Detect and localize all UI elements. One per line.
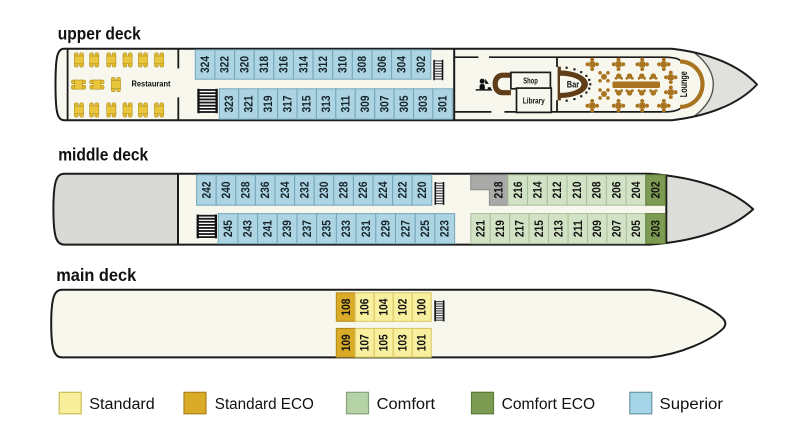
svg-text:235: 235 bbox=[321, 220, 334, 237]
svg-text:230: 230 bbox=[318, 182, 331, 199]
svg-text:310: 310 bbox=[337, 56, 350, 73]
svg-text:303: 303 bbox=[417, 95, 430, 112]
svg-text:219: 219 bbox=[494, 220, 507, 237]
svg-text:238: 238 bbox=[240, 181, 253, 198]
svg-text:205: 205 bbox=[630, 220, 643, 237]
svg-text:313: 313 bbox=[320, 95, 333, 112]
svg-text:Shop: Shop bbox=[523, 77, 538, 86]
svg-text:324: 324 bbox=[199, 56, 212, 73]
svg-text:307: 307 bbox=[378, 96, 391, 113]
svg-text:109: 109 bbox=[340, 334, 353, 351]
svg-text:Restaurant: Restaurant bbox=[132, 79, 171, 88]
svg-text:226: 226 bbox=[357, 181, 370, 198]
svg-text:208: 208 bbox=[591, 181, 604, 198]
svg-text:239: 239 bbox=[281, 220, 294, 237]
svg-text:302: 302 bbox=[415, 56, 428, 73]
svg-text:214: 214 bbox=[532, 181, 545, 198]
svg-text:221: 221 bbox=[475, 220, 488, 237]
svg-text:Superior: Superior bbox=[660, 396, 724, 413]
svg-text:318: 318 bbox=[258, 56, 271, 73]
svg-text:216: 216 bbox=[512, 181, 525, 198]
svg-text:321: 321 bbox=[242, 95, 255, 112]
svg-text:Lounge: Lounge bbox=[679, 71, 690, 97]
svg-text:209: 209 bbox=[591, 220, 604, 237]
svg-text:224: 224 bbox=[377, 181, 390, 198]
svg-text:202: 202 bbox=[650, 182, 663, 199]
svg-text:319: 319 bbox=[262, 95, 275, 112]
svg-text:Comfort: Comfort bbox=[377, 396, 436, 413]
svg-text:210: 210 bbox=[571, 182, 584, 199]
svg-text:232: 232 bbox=[298, 182, 311, 199]
svg-text:211: 211 bbox=[572, 220, 585, 237]
svg-text:312: 312 bbox=[317, 56, 330, 73]
svg-text:105: 105 bbox=[378, 334, 391, 351]
svg-text:103: 103 bbox=[397, 334, 410, 351]
svg-text:102: 102 bbox=[397, 299, 410, 316]
svg-text:305: 305 bbox=[398, 95, 411, 112]
svg-text:245: 245 bbox=[222, 220, 235, 237]
svg-text:212: 212 bbox=[551, 182, 564, 199]
svg-text:228: 228 bbox=[338, 181, 351, 198]
svg-text:323: 323 bbox=[223, 95, 236, 112]
svg-text:main deck: main deck bbox=[56, 265, 136, 285]
svg-text:240: 240 bbox=[220, 182, 233, 199]
svg-text:308: 308 bbox=[356, 56, 369, 73]
svg-text:Standard ECO: Standard ECO bbox=[215, 396, 314, 413]
svg-text:215: 215 bbox=[533, 220, 546, 237]
svg-text:Standard: Standard bbox=[89, 396, 155, 413]
svg-text:107: 107 bbox=[359, 334, 372, 351]
svg-text:204: 204 bbox=[630, 181, 643, 198]
svg-text:311: 311 bbox=[340, 95, 353, 112]
svg-text:314: 314 bbox=[297, 56, 310, 73]
svg-text:229: 229 bbox=[380, 220, 393, 237]
svg-text:222: 222 bbox=[396, 182, 409, 199]
svg-text:Bar: Bar bbox=[567, 79, 580, 89]
svg-text:101: 101 bbox=[416, 334, 429, 351]
svg-text:233: 233 bbox=[340, 220, 353, 237]
svg-text:213: 213 bbox=[552, 220, 565, 237]
svg-text:upper deck: upper deck bbox=[58, 23, 141, 43]
svg-text:Library: Library bbox=[523, 96, 545, 105]
svg-text:301: 301 bbox=[437, 95, 450, 112]
svg-text:218: 218 bbox=[493, 181, 506, 198]
svg-text:322: 322 bbox=[219, 56, 232, 73]
svg-text:Comfort ECO: Comfort ECO bbox=[502, 396, 595, 413]
svg-text:217: 217 bbox=[513, 220, 526, 237]
svg-text:100: 100 bbox=[416, 299, 429, 316]
svg-text:227: 227 bbox=[399, 220, 412, 237]
svg-text:223: 223 bbox=[439, 220, 452, 237]
svg-text:108: 108 bbox=[340, 298, 353, 315]
svg-text:317: 317 bbox=[281, 96, 294, 113]
svg-text:middle deck: middle deck bbox=[58, 145, 148, 165]
svg-text:106: 106 bbox=[359, 298, 372, 315]
svg-text:104: 104 bbox=[378, 298, 391, 315]
svg-text:234: 234 bbox=[279, 181, 292, 198]
svg-text:242: 242 bbox=[200, 182, 213, 199]
svg-text:225: 225 bbox=[419, 220, 432, 237]
svg-text:309: 309 bbox=[359, 95, 372, 112]
svg-text:241: 241 bbox=[261, 220, 274, 237]
svg-text:243: 243 bbox=[242, 220, 255, 237]
svg-text:304: 304 bbox=[395, 56, 408, 73]
svg-text:220: 220 bbox=[416, 182, 429, 199]
svg-text:203: 203 bbox=[650, 220, 663, 237]
svg-text:206: 206 bbox=[610, 181, 623, 198]
svg-text:236: 236 bbox=[259, 181, 272, 198]
svg-text:237: 237 bbox=[301, 220, 314, 237]
svg-text:320: 320 bbox=[238, 56, 251, 73]
svg-text:207: 207 bbox=[611, 220, 624, 237]
svg-text:306: 306 bbox=[376, 56, 389, 73]
svg-text:316: 316 bbox=[278, 56, 291, 73]
svg-text:315: 315 bbox=[301, 95, 314, 112]
svg-text:231: 231 bbox=[360, 220, 373, 237]
